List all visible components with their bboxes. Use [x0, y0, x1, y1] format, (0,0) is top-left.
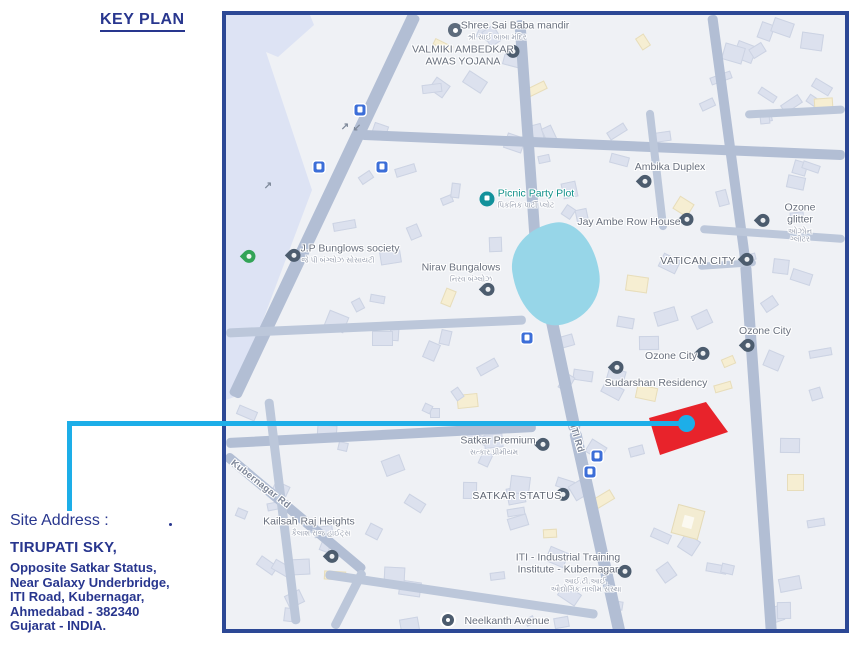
- map-inner: ↗↙↗Shree Sai Baba mandirશ્રી સાઈ બાબા મં…: [226, 15, 845, 629]
- map-label: Neelkanth Avenue: [464, 616, 549, 628]
- page-title: KEY PLAN: [100, 11, 185, 32]
- map-label: VALMIKI AMBEDKAR AWAS YOJANA: [412, 44, 514, 68]
- leader-line-dot: [678, 415, 695, 432]
- bus-stop-icon: [585, 467, 596, 478]
- site-address-heading: Site Address :: [10, 512, 109, 530]
- address-line: Ahmedabad - 382340: [10, 605, 170, 620]
- address-line: ITI Road, Kubernagar,: [10, 590, 170, 605]
- oneway-arrow-icon: ↗: [341, 122, 349, 133]
- leader-line-vertical: [67, 421, 72, 511]
- stray-dot: [169, 523, 172, 526]
- map-label-subtext: ઓઝોન ગ્લીટર: [778, 227, 823, 244]
- map-label-subtext: જે પી બંગ્લોઝ સોસાયટી: [288, 256, 387, 264]
- map-label: Nirav Bungalowsનિરવ બંગ્લોઝ: [422, 262, 501, 283]
- map-label-subtext: સત્કાર પ્રીમીયમ: [456, 448, 531, 456]
- map-label: J.P Bunglows societyજે પી બંગ્લોઝ સોસાયટ…: [300, 243, 399, 264]
- map-label: Ambika Duplex: [635, 162, 706, 174]
- map-label-subtext: નિરવ બંગ્લોઝ: [432, 275, 511, 283]
- map-label: Kailsah Raj Heightsકૈલાશ રાજ હાઈટ્સ: [263, 516, 355, 537]
- map-label-subtext: આઈ.ટી.આઈ. ઔદ્યોગિક તાલીમ સંસ્થા: [534, 577, 638, 594]
- bus-stop-icon: [592, 451, 603, 462]
- address-line: Opposite Satkar Status,: [10, 561, 170, 576]
- map-label: Shree Sai Baba mandirશ્રી સાઈ બાબા મંદિર: [461, 20, 570, 41]
- bus-stop-icon: [355, 105, 366, 116]
- site-address-lines: Opposite Satkar Status, Near Galaxy Unde…: [10, 561, 170, 634]
- oneway-arrow-icon: ↗: [264, 181, 272, 192]
- bus-stop-icon: [377, 162, 388, 173]
- map-label: SATKAR STATUS: [472, 491, 561, 503]
- address-line: Near Galaxy Underbridge,: [10, 576, 170, 591]
- map-label: ITI - Industrial Training Institute - Ku…: [516, 552, 620, 593]
- site-name: TIRUPATI SKY,: [10, 539, 117, 556]
- map-label: Ozone glitterઓઝોન ગ્લીટર: [778, 202, 823, 243]
- map-label-subtext: પિકનિક પાર્ટી પ્લોટ: [488, 201, 564, 209]
- bus-stop-icon: [314, 162, 325, 173]
- map-label: Jay Ambe Row House: [577, 217, 680, 229]
- map-frame: ↗↙↗Shree Sai Baba mandirશ્રી સાઈ બાબા મં…: [222, 11, 849, 633]
- map-label: Satkar Premiumસત્કાર પ્રીમીયમ: [460, 435, 535, 456]
- leader-line-horizontal: [67, 421, 687, 426]
- address-line: Gujarat - INDIA.: [10, 619, 170, 634]
- map-label-subtext: કૈલાશ રાજ હાઈટ્સ: [275, 529, 367, 537]
- map-label: Ozone City: [645, 351, 697, 363]
- map-label: Ozone City: [739, 326, 791, 338]
- map-label-subtext: શ્રી સાઈ બાબા મંદિર: [443, 33, 552, 41]
- map-label: Sudarshan Residency: [605, 378, 708, 390]
- bus-stop-icon: [522, 333, 533, 344]
- map-label: VATICAN CITY: [660, 256, 736, 268]
- keyplan-sheet: KEY PLAN: [0, 0, 851, 648]
- poi-circle-icon: [442, 614, 454, 626]
- oneway-arrow-icon: ↙: [353, 123, 361, 134]
- map-label: Picnic Party Plotપિકનિક પાર્ટી પ્લોટ: [498, 188, 574, 209]
